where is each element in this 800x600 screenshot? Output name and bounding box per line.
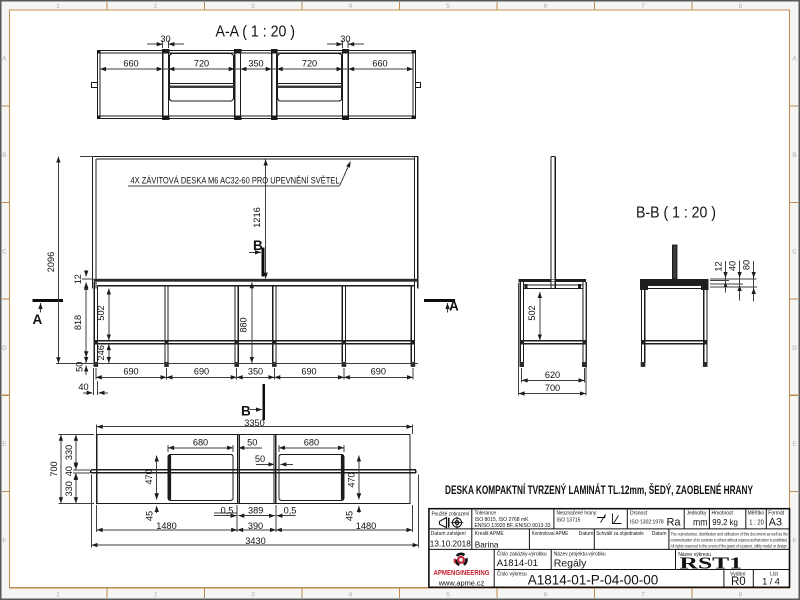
svg-text:Neoznačené hrany:: Neoznačené hrany: [557,511,598,517]
svg-text:40: 40 [64,466,74,476]
svg-text:660: 660 [372,59,387,69]
svg-text:818: 818 [73,315,83,330]
svg-text:4X ZÁVITOVÁ DESKA M6 AC32-60 P: 4X ZÁVITOVÁ DESKA M6 AC32-60 PRO UPEVNĚN… [131,176,340,186]
svg-text:6: 6 [544,592,548,599]
svg-text:1216: 1216 [252,207,262,227]
svg-text:E: E [792,441,796,448]
svg-text:12: 12 [713,261,723,271]
svg-text:ENISO 13920 BF, ENISO 9013-33: ENISO 13920 BF, ENISO 9013-33 [475,523,551,529]
svg-text:4: 4 [349,592,353,599]
svg-text:3430: 3430 [245,536,265,546]
svg-text:620: 620 [545,370,560,380]
svg-text:8: 8 [739,3,743,10]
svg-text:690: 690 [123,366,138,376]
svg-text:B: B [792,152,796,159]
svg-text:1480: 1480 [156,521,176,531]
svg-text:Datum zahájení: Datum zahájení [431,531,467,537]
svg-text:690: 690 [194,366,209,376]
svg-text:3: 3 [251,592,255,599]
svg-text:Datum: Datum [652,531,667,537]
svg-text:99,2 kg: 99,2 kg [712,518,738,527]
svg-text:700: 700 [545,383,560,393]
svg-text:5: 5 [446,592,450,599]
svg-text:The reproduction, distribution: The reproduction, distribution and utili… [671,532,789,537]
svg-text:30: 30 [340,34,350,44]
svg-text:D: D [2,345,7,352]
svg-text:4: 4 [349,3,353,10]
svg-text:470: 470 [144,469,154,484]
svg-text:1 / 4: 1 / 4 [762,576,780,586]
svg-text:7: 7 [641,3,645,10]
svg-text:RST1: RST1 [680,554,743,573]
svg-text:0,5: 0,5 [221,505,234,515]
svg-text:1: 1 [56,3,60,10]
svg-text:DESKA KOMPAKTNÍ TVRZENÝ LAMINÁ: DESKA KOMPAKTNÍ TVRZENÝ LAMINÁT TL.12mm,… [445,484,753,497]
svg-text:2: 2 [154,592,158,599]
svg-text:B: B [241,404,251,419]
svg-text:Číslo zakázky-výrobku: Číslo zakázky-výrobku [497,550,547,557]
svg-text:680: 680 [304,437,319,447]
svg-text:mm: mm [693,517,708,529]
svg-text:All rights reserved in the eve: All rights reserved in the event of the … [671,543,789,548]
svg-text:Kreslil APME: Kreslil APME [475,531,505,537]
svg-text:690: 690 [301,366,316,376]
svg-text:660: 660 [123,59,138,69]
svg-text:A1814-01-P-04-00-00: A1814-01-P-04-00-00 [528,573,659,588]
svg-text:50: 50 [247,437,257,447]
svg-text:700: 700 [49,461,59,476]
svg-text:13.10.2018: 13.10.2018 [430,540,471,549]
svg-text:50: 50 [75,362,85,372]
svg-text:Barina: Barina [475,540,499,549]
svg-text:50: 50 [255,454,265,464]
svg-text:Regály: Regály [554,558,587,570]
svg-text:www.apme.cz: www.apme.cz [438,578,485,587]
svg-text:350: 350 [248,59,263,69]
svg-text:40: 40 [78,382,88,392]
svg-text:Hmotnost: Hmotnost [712,511,734,517]
svg-text:5: 5 [446,3,450,10]
svg-text:Tolerance: Tolerance [475,511,497,517]
svg-text:3: 3 [251,3,255,10]
svg-text:ISO 1302:1978: ISO 1302:1978 [630,520,664,526]
svg-text:APMENGINEERING: APMENGINEERING [434,568,490,577]
svg-text:1480: 1480 [356,521,376,531]
svg-text:Použité zobrazení: Použité zobrazení [432,511,471,517]
svg-text:Číslo výkresu: Číslo výkresu [497,571,527,578]
svg-text:A3: A3 [769,516,782,528]
svg-text:330: 330 [64,445,74,460]
svg-text:470: 470 [346,472,356,487]
svg-text:720: 720 [194,59,209,69]
svg-text:A: A [449,299,459,314]
svg-text:3350: 3350 [244,418,264,428]
svg-text:40: 40 [727,261,737,271]
svg-text:720: 720 [302,59,317,69]
svg-text:8: 8 [739,592,743,599]
svg-text:80: 80 [742,260,752,270]
svg-text:502: 502 [527,305,537,320]
svg-text:Ra: Ra [666,517,681,529]
svg-text:0,5: 0,5 [284,505,297,515]
svg-text:communication of its contents: communication of its contents to others … [671,538,789,543]
svg-text:A1814-01: A1814-01 [497,558,538,569]
svg-text:F: F [793,538,797,545]
svg-text:690: 690 [371,366,386,376]
svg-text:390: 390 [248,521,263,531]
svg-text:45: 45 [344,511,354,521]
svg-text:246: 246 [96,345,106,360]
svg-text:350: 350 [248,366,263,376]
svg-text:Kontroloval APME: Kontroloval APME [532,531,569,537]
svg-text:B-B ( 1 : 20 ): B-B ( 1 : 20 ) [636,205,716,222]
svg-text:Název projektu-výrobku: Název projektu-výrobku [554,551,606,557]
svg-text:A: A [33,312,43,327]
svg-text:1: 1 [56,592,60,599]
svg-text:Datum: Datum [579,531,594,537]
svg-text:D: D [792,345,797,352]
svg-text:502: 502 [96,305,106,320]
svg-text:C: C [2,249,7,256]
svg-text:C: C [792,249,797,256]
svg-text:Drsnost: Drsnost [630,511,648,517]
svg-text:F: F [2,538,6,545]
svg-text:389: 389 [248,505,263,515]
svg-text:2: 2 [154,3,158,10]
svg-text:Schválil za objednatele: Schválil za objednatele [596,531,644,537]
svg-text:R0: R0 [731,576,746,588]
svg-text:6: 6 [544,3,548,10]
svg-text:12: 12 [73,274,83,284]
svg-text:680: 680 [193,437,208,447]
svg-text:1 : 20: 1 : 20 [749,518,764,527]
svg-text:ISO 13715: ISO 13715 [557,518,581,524]
svg-text:Měřítko: Měřítko [748,511,765,517]
svg-text:330: 330 [64,481,74,496]
svg-text:880: 880 [238,317,248,332]
svg-text:E: E [2,441,6,448]
svg-text:45: 45 [144,511,154,521]
svg-text:A-A ( 1 : 20 ): A-A ( 1 : 20 ) [216,24,296,41]
svg-text:B: B [2,152,6,159]
svg-text:2096: 2096 [46,252,56,272]
svg-text:30: 30 [160,34,170,44]
svg-text:7: 7 [641,592,645,599]
